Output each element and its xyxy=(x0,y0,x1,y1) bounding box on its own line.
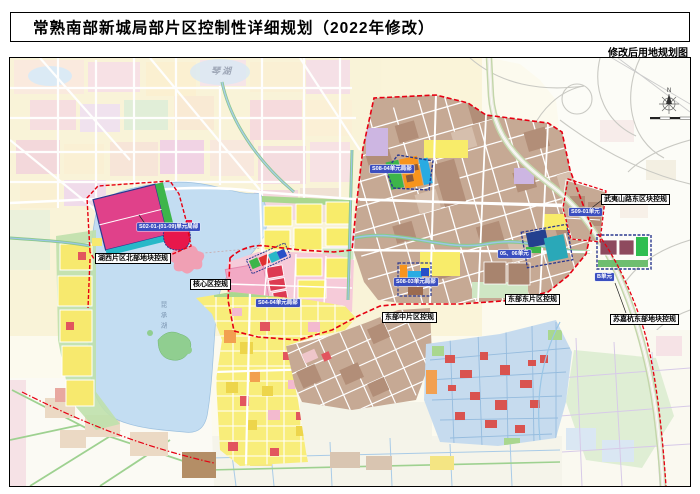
place-label-kunchenghu: 昆承湖 xyxy=(157,301,167,333)
unit-label-s09: S09-01单元 xyxy=(569,208,602,216)
map-canvas: N xyxy=(10,58,690,486)
plan-label-dongbu-zhong: 东部中片区控规 xyxy=(382,312,437,323)
title-bar: 常熟南部新城局部片区控制性详细规划（2022年修改） xyxy=(10,12,690,42)
page-title: 常熟南部新城局部片区控制性详细规划（2022年修改） xyxy=(33,16,434,38)
faded-southeast xyxy=(560,330,690,486)
unit-block-b xyxy=(597,235,651,269)
unit-label-0506: 05、06单元 xyxy=(498,250,531,258)
plan-label-huxi: 湖西片区北部地块控规 xyxy=(95,253,171,264)
scale-bar xyxy=(650,117,690,119)
page: 常熟南部新城局部片区控制性详细规划（2022年修改） 修改后用地规划图 xyxy=(0,0,700,494)
map-frame: N 琴湖 昆承湖 湖西片区北部地块控规 核心区控规 东部中片区控规 东部东片区控… xyxy=(9,57,691,487)
unit-label-s08-03: S08-03单元局部 xyxy=(394,278,438,286)
unit-label-s02: S02-01-(01-09)单元局部 xyxy=(137,223,200,231)
unit-label-s04: S04-04单元局部 xyxy=(256,299,300,307)
plan-label-wuyishan: 武夷山路东区块控规 xyxy=(601,194,670,205)
svg-text:N: N xyxy=(667,88,671,94)
plan-label-hexin: 核心区控规 xyxy=(190,279,231,290)
unit-label-s08-04: S08-04单元局部 xyxy=(370,165,414,173)
place-label-qinhu: 琴湖 xyxy=(211,64,233,77)
plan-label-sujiahang: 苏嘉杭东部地块控规 xyxy=(610,314,679,325)
plan-label-dongbu-dong: 东部东片区控规 xyxy=(505,294,560,305)
unit-label-b: B单元 xyxy=(595,273,614,281)
